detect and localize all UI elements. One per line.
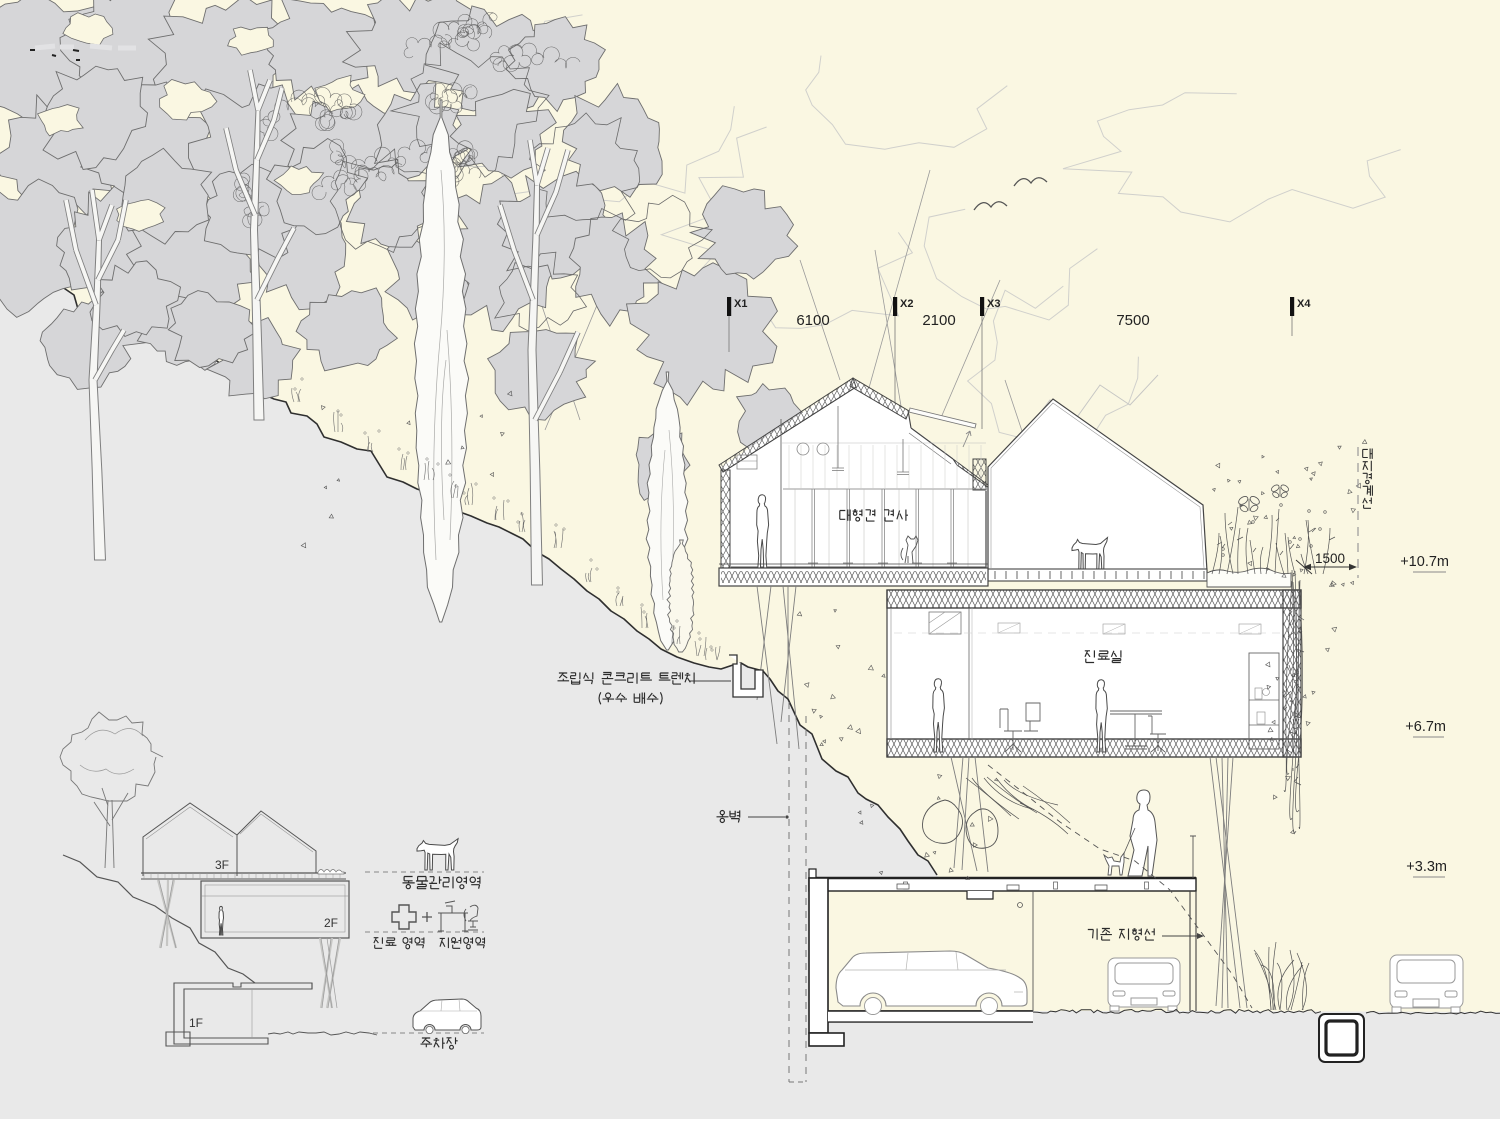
svg-text:X2: X2	[900, 298, 913, 310]
svg-text:X4: X4	[1297, 298, 1311, 310]
svg-text:X3: X3	[987, 298, 1000, 310]
svg-text:+10.7m: +10.7m	[1400, 554, 1449, 570]
svg-text:+6.7m: +6.7m	[1405, 719, 1446, 735]
svg-text:7500: 7500	[1116, 312, 1149, 329]
svg-text:6100: 6100	[796, 312, 829, 329]
svg-text:2100: 2100	[922, 312, 955, 329]
svg-text:+3.3m: +3.3m	[1406, 859, 1447, 875]
svg-text:3F: 3F	[215, 858, 229, 872]
svg-text:X1: X1	[734, 298, 747, 310]
svg-text:1500: 1500	[1315, 551, 1345, 566]
svg-text:1F: 1F	[189, 1016, 203, 1030]
svg-text:2F: 2F	[324, 916, 338, 930]
